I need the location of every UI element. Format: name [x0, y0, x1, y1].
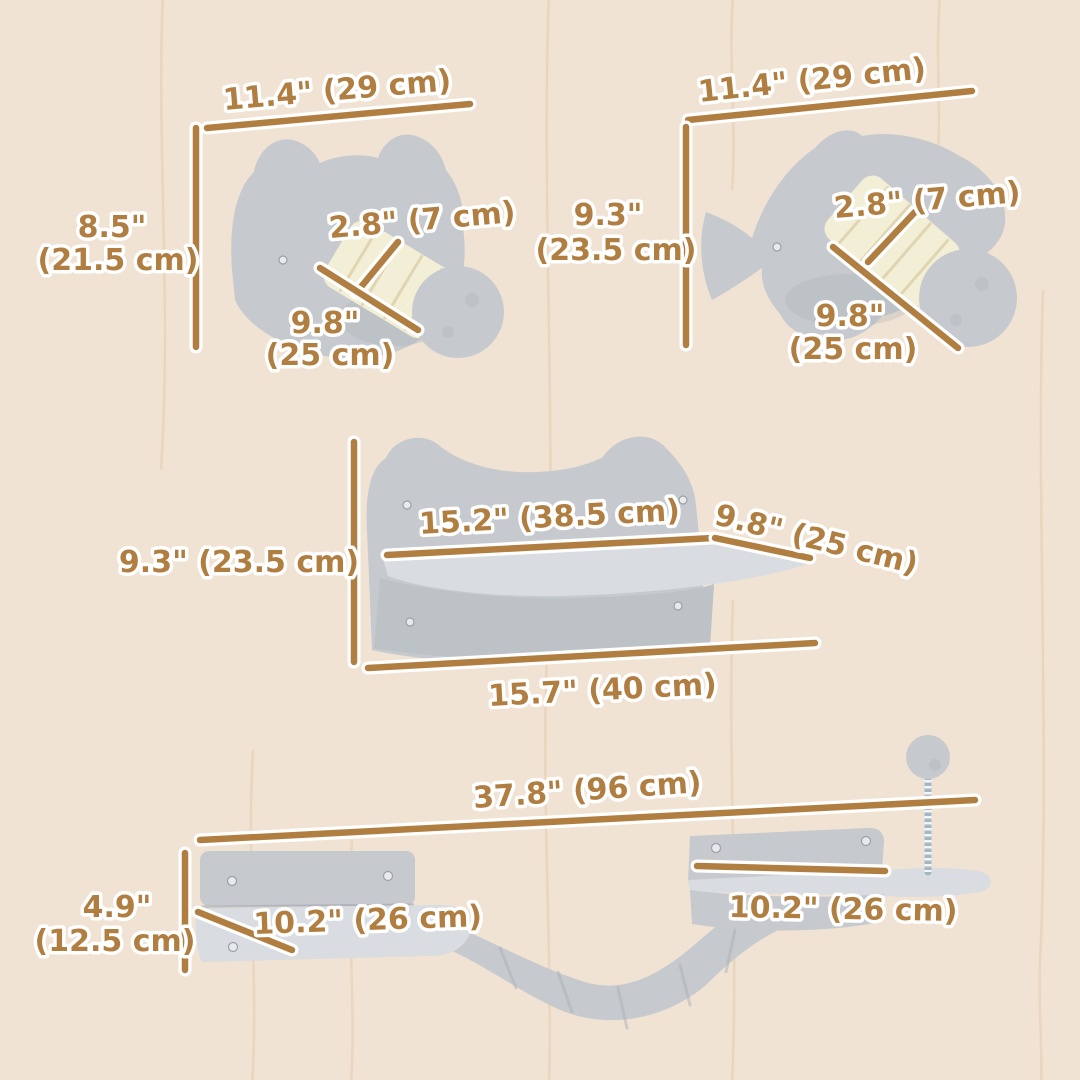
- wave-line: [937, 0, 940, 170]
- product-dimensions-diagram: 11.4" (29 cm) 8.5" (21.5 cm) 2.8" (7 cm)…: [0, 0, 1080, 1080]
- pompom-ball: [906, 735, 950, 779]
- screw: [406, 618, 414, 626]
- screw: [679, 496, 687, 504]
- dim-label-cat-head-post-length-in: 9.8": [291, 306, 360, 341]
- dim-label-right-shelf-width: 10.2" (26 cm): [729, 890, 958, 929]
- dim-label-bridge-height-in: 4.9": [83, 890, 152, 925]
- screw: [712, 844, 721, 853]
- end-cap-texture: [950, 314, 962, 326]
- screw: [229, 943, 238, 952]
- end-cap-texture: [465, 293, 479, 307]
- pompom-shading: [929, 759, 941, 771]
- screw: [279, 256, 287, 264]
- end-cap-texture: [442, 326, 454, 338]
- screw: [862, 837, 871, 846]
- dim-label-cat-head-height-in: 8.5": [78, 210, 147, 245]
- dim-label-cat-head-height-cm: (21.5 cm): [38, 243, 199, 278]
- dim-label-ear-shelf-height: 9.3" (23.5 cm): [119, 545, 359, 580]
- screw: [384, 872, 393, 881]
- dim-label-fish-post-length-cm: (25 cm): [789, 332, 918, 367]
- dim-label-fish-height-in: 9.3": [574, 198, 643, 233]
- post-end-cap: [412, 266, 504, 358]
- screw: [773, 243, 781, 251]
- dim-label-fish-post-length-in: 9.8": [816, 299, 885, 334]
- dim-label-bridge-height-cm: (12.5 cm): [35, 924, 196, 959]
- screw: [674, 602, 682, 610]
- dim-label-fish-height-cm: (23.5 cm): [536, 233, 697, 268]
- dim-label-cat-head-post-length-cm: (25 cm): [266, 338, 395, 373]
- end-cap-texture: [975, 277, 989, 291]
- dim-right-shelf-width-line: [697, 866, 885, 871]
- screw: [403, 501, 411, 509]
- screw: [228, 877, 237, 886]
